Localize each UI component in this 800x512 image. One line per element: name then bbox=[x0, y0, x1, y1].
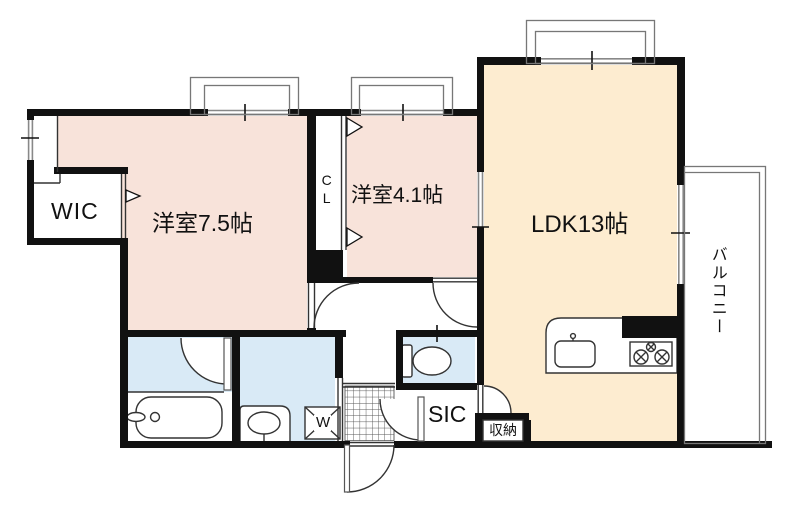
label-balcony: バルコニー bbox=[708, 246, 725, 336]
toilet-icon bbox=[402, 345, 451, 377]
label-sic: SIC bbox=[428, 402, 466, 426]
label-closet: CL bbox=[319, 172, 334, 208]
label-ldk: LDK13帖 bbox=[531, 212, 628, 237]
kitchen-counter-icon bbox=[546, 316, 680, 373]
floor-hallway bbox=[316, 283, 477, 330]
label-bedroom-main: 洋室7.5帖 bbox=[152, 211, 253, 235]
floorplan-canvas: WIC 洋室7.5帖 CL 洋室4.1帖 LDK13帖 バルコニー SIC 収納… bbox=[0, 0, 800, 512]
bay-window-bedroom-second bbox=[352, 78, 453, 115]
bathroom-door-leaf bbox=[224, 338, 231, 390]
floor-ldk bbox=[484, 65, 677, 441]
stove-icon bbox=[630, 342, 672, 366]
room-floors bbox=[34, 65, 677, 441]
entry-door-leaf bbox=[345, 445, 350, 492]
label-washer: W bbox=[316, 415, 330, 431]
floor-corridor bbox=[346, 330, 396, 386]
floorplan-drawing bbox=[0, 0, 800, 512]
kitchen-end-wall bbox=[622, 316, 680, 338]
label-storage: 収納 bbox=[489, 423, 517, 438]
entry-door-arc bbox=[347, 445, 394, 492]
label-bedroom-second: 洋室4.1帖 bbox=[351, 185, 443, 207]
floor-bedroom-main-lower bbox=[128, 245, 310, 333]
sic-door-leaf bbox=[418, 397, 424, 441]
label-wic: WIC bbox=[51, 199, 99, 223]
washbasin-icon bbox=[240, 406, 290, 443]
